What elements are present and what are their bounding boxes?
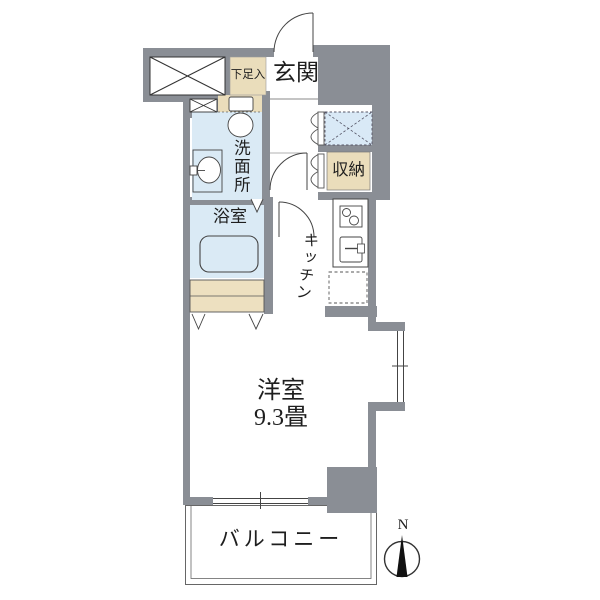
compass-north-label: N <box>393 518 413 534</box>
storage-label: 収納 <box>327 161 370 178</box>
toilet-icon <box>228 97 253 137</box>
main-window-icon <box>213 492 308 509</box>
bay-window-icon <box>392 331 408 402</box>
corner-wall-block <box>327 467 377 513</box>
balcony-label: バルコニー <box>185 528 377 550</box>
crossed-box-small <box>190 99 217 112</box>
bathroom-label: 浴室 <box>206 208 254 226</box>
shoe-cabinet-label: 下足入 <box>227 69 269 81</box>
entrance-door-icon <box>274 13 313 52</box>
washing-machine-space <box>325 112 372 145</box>
washroom-label: 洗面所 <box>232 136 249 198</box>
hall-niche-divider <box>318 145 372 152</box>
folding-door-storage <box>311 154 324 188</box>
crossed-box-large <box>150 57 225 95</box>
refrigerator-space <box>329 272 367 303</box>
closet-door-marks <box>192 314 263 329</box>
main-room-size: 9.3畳 <box>231 406 331 431</box>
entrance-label: 玄関 <box>271 61 321 85</box>
compass-icon <box>385 535 420 577</box>
kitchen-counter <box>333 199 368 267</box>
folding-door-washer <box>311 112 324 145</box>
washroom-door-icon <box>270 153 307 190</box>
floor-plan: 下足入 玄関 洗面所 浴室 収納 キッチン 洋室 9.3畳 バルコニー N <box>0 0 600 600</box>
main-room-label: 洋室 <box>231 379 331 404</box>
